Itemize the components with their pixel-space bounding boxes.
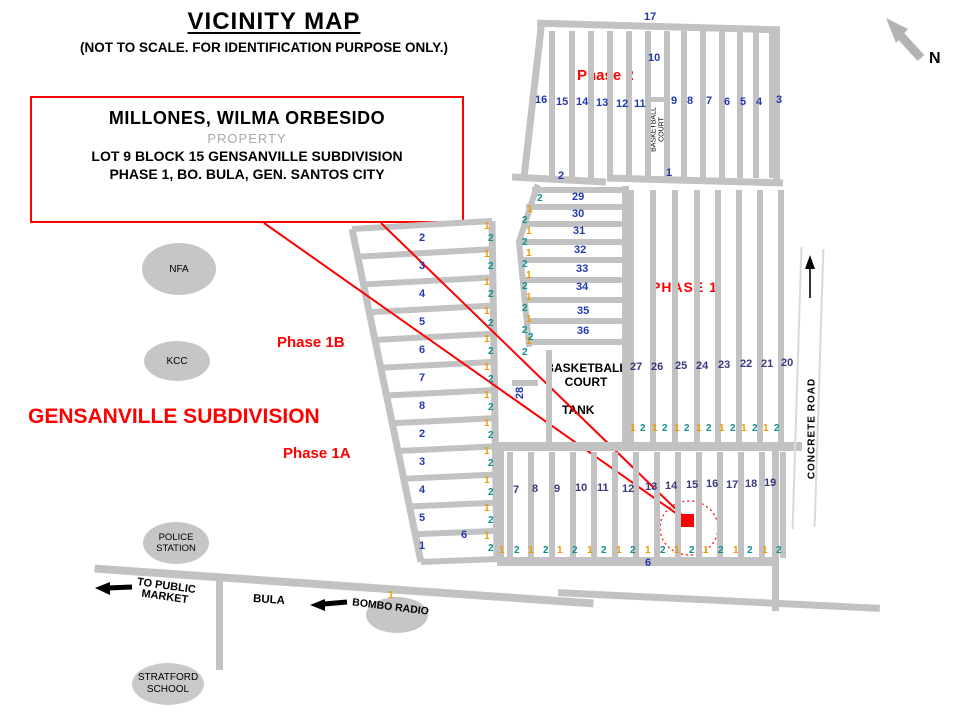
lot-number: 31 bbox=[573, 225, 585, 237]
lot-number: 26 bbox=[651, 361, 663, 373]
lot-number: 2 bbox=[419, 232, 425, 244]
road-segment bbox=[612, 452, 618, 558]
lot-number: 2 bbox=[630, 545, 636, 557]
lot-number: 6 bbox=[461, 529, 467, 541]
lot-number: 2 bbox=[640, 423, 646, 435]
kcc-label: KCC bbox=[166, 356, 187, 367]
lot-number: 2 bbox=[706, 423, 712, 435]
phase-1b-label: Phase 1B bbox=[277, 334, 345, 351]
subject-lot-marker bbox=[681, 514, 694, 527]
lot-number: 2 bbox=[662, 423, 668, 435]
road-segment bbox=[717, 452, 723, 558]
north-arrow-shaft bbox=[899, 34, 921, 58]
subdivision-title: GENSANVILLE SUBDIVISION bbox=[28, 405, 320, 429]
road-segment bbox=[528, 318, 622, 324]
road-segment bbox=[392, 418, 495, 423]
lot-number: 2 bbox=[528, 332, 534, 344]
lot-number: 8 bbox=[687, 95, 693, 107]
lot-number: 2 bbox=[488, 374, 494, 386]
lot-number: 25 bbox=[675, 360, 687, 372]
road-segment bbox=[546, 350, 552, 446]
road-segment bbox=[512, 380, 538, 386]
lot-number: 2 bbox=[747, 545, 753, 557]
lot-number: 1 bbox=[719, 423, 725, 435]
lot-number: 1 bbox=[484, 418, 490, 430]
lot-number: 12 bbox=[616, 98, 628, 110]
lot-number: 2 bbox=[537, 193, 543, 205]
road-segment bbox=[387, 390, 495, 396]
nfa-label: NFA bbox=[169, 264, 188, 275]
lot-number: 16 bbox=[706, 478, 718, 490]
lot-number: 2 bbox=[488, 430, 494, 442]
road-segment bbox=[778, 190, 784, 444]
lot-number: 1 bbox=[645, 545, 651, 557]
lot-number: 4 bbox=[419, 484, 425, 496]
road-segment bbox=[591, 452, 597, 558]
lot-number: 1 bbox=[419, 540, 425, 552]
road-segment bbox=[738, 452, 744, 558]
road-segment bbox=[404, 475, 496, 479]
lot-number: 1 bbox=[557, 545, 563, 557]
lot-number: 2 bbox=[601, 545, 607, 557]
police-station-label-line2: STATION bbox=[156, 543, 196, 554]
road-segment bbox=[527, 297, 622, 303]
lot-number: 12 bbox=[622, 483, 634, 495]
road-segment bbox=[715, 190, 721, 444]
road-segment bbox=[696, 452, 702, 558]
road-segment bbox=[772, 449, 779, 611]
lot-number: 5 bbox=[740, 96, 746, 108]
road-segment bbox=[628, 190, 634, 444]
lot-number: 23 bbox=[718, 359, 730, 371]
police-station-landmark: POLICE STATION bbox=[143, 522, 209, 564]
road-segment bbox=[369, 306, 493, 313]
lot-number: 1 bbox=[484, 503, 490, 515]
lot-number: 1 bbox=[696, 423, 702, 435]
lot-number: 1 bbox=[484, 221, 490, 233]
lot-number: 1 bbox=[484, 390, 490, 402]
road-segment bbox=[381, 362, 494, 368]
lot-number: 1 bbox=[484, 531, 490, 543]
lot-number: 1 bbox=[674, 423, 680, 435]
lot-number: 21 bbox=[761, 358, 773, 370]
lot-number: 24 bbox=[696, 360, 708, 372]
lot-number: 36 bbox=[577, 325, 589, 337]
road-segment bbox=[792, 247, 803, 529]
lot-number: 1 bbox=[484, 334, 490, 346]
lot-number: 2 bbox=[718, 545, 724, 557]
lot-number: 1 bbox=[484, 306, 490, 318]
road-segment bbox=[364, 277, 493, 284]
lot-number: 22 bbox=[740, 358, 752, 370]
road-segment bbox=[654, 452, 660, 558]
road-segment bbox=[650, 190, 656, 444]
police-station-label-line1: POLICE bbox=[159, 532, 194, 543]
lot-number: 9 bbox=[554, 483, 560, 495]
lot-number: 2 bbox=[774, 423, 780, 435]
lot-number: 10 bbox=[575, 482, 587, 494]
road-segment bbox=[529, 339, 622, 345]
lot-number: 2 bbox=[488, 515, 494, 527]
lot-number: 2 bbox=[543, 545, 549, 557]
property-owner: MILLONES, WILMA ORBESIDO bbox=[32, 108, 462, 129]
lot-number: 17 bbox=[644, 11, 656, 23]
lot-number: 6 bbox=[724, 96, 730, 108]
lot-number: 6 bbox=[419, 344, 425, 356]
lot-number: 2 bbox=[730, 423, 736, 435]
road-segment bbox=[398, 446, 495, 451]
road-segment bbox=[549, 31, 555, 178]
lot-number: 5 bbox=[419, 512, 425, 524]
lot-number: 1 bbox=[499, 545, 505, 557]
lot-number: 1 bbox=[652, 423, 658, 435]
lot-number: 2 bbox=[419, 428, 425, 440]
road-segment bbox=[633, 452, 639, 558]
lot-number: 11 bbox=[597, 482, 609, 494]
lot-number: 1 bbox=[674, 545, 680, 557]
lot-number: 2 bbox=[488, 318, 494, 330]
lot-number: 2 bbox=[488, 458, 494, 470]
road-segment bbox=[769, 31, 775, 178]
lot-number: 30 bbox=[572, 208, 584, 220]
road-segment bbox=[421, 559, 497, 562]
lot-number: 2 bbox=[558, 170, 564, 182]
north-label: N bbox=[929, 50, 941, 68]
road-segment bbox=[675, 452, 681, 558]
road-segment bbox=[759, 452, 765, 558]
lot-number: 2 bbox=[488, 487, 494, 499]
property-type: PROPERTY bbox=[32, 131, 462, 146]
lot-number: 16 bbox=[535, 94, 547, 106]
to-public-market-arrow-icon bbox=[95, 582, 110, 595]
lot-number: 15 bbox=[686, 479, 698, 491]
road-segment bbox=[736, 190, 742, 444]
lot-number: 1 bbox=[587, 545, 593, 557]
road-segment bbox=[569, 31, 575, 178]
lot-number: 1 bbox=[484, 475, 490, 487]
lot-number: 29 bbox=[572, 191, 584, 203]
road-segment bbox=[780, 452, 786, 558]
lot-number: 2 bbox=[684, 423, 690, 435]
road-segment bbox=[570, 452, 576, 558]
lot-number: 17 bbox=[726, 479, 738, 491]
road-segment bbox=[549, 452, 555, 558]
road-segment bbox=[522, 221, 622, 227]
lot-number: 27 bbox=[630, 361, 642, 373]
lot-number: 2 bbox=[514, 545, 520, 557]
nfa-landmark: NFA bbox=[142, 243, 216, 295]
lot-number: 11 bbox=[634, 98, 646, 110]
lot-number: 1 bbox=[484, 362, 490, 374]
lot-number: 13 bbox=[645, 481, 657, 493]
lot-number: 1 bbox=[666, 167, 672, 179]
lot-number: 1 bbox=[733, 545, 739, 557]
lot-number: 2 bbox=[488, 543, 494, 555]
lot-number: 2 bbox=[488, 402, 494, 414]
road-segment bbox=[672, 190, 678, 444]
lot-number: 1 bbox=[762, 545, 768, 557]
lot-number: 20 bbox=[781, 357, 793, 369]
property-callout-box: MILLONES, WILMA ORBESIDO PROPERTY LOT 9 … bbox=[30, 96, 464, 223]
bombo-radio-arrow-shaft bbox=[324, 602, 347, 604]
lot-number: 15 bbox=[556, 96, 568, 108]
lot-number: 35 bbox=[577, 305, 589, 317]
lot-number: 9 bbox=[671, 95, 677, 107]
bombo-radio-arrow-icon bbox=[310, 599, 325, 611]
lot-number: 6 bbox=[645, 557, 651, 569]
lot-number: 2 bbox=[488, 261, 494, 273]
to-public-market-label: TO PUBLIC MARKET bbox=[135, 577, 197, 607]
stratford-school-label-line2: SCHOOL bbox=[147, 684, 189, 696]
lot-number: 7 bbox=[706, 95, 712, 107]
lot-number: 4 bbox=[419, 288, 425, 300]
lot-number: 33 bbox=[576, 263, 588, 275]
lot-number: 2 bbox=[572, 545, 578, 557]
lot-number: 2 bbox=[488, 346, 494, 358]
page-title: VICINITY MAP bbox=[188, 8, 361, 35]
bula-road-label: BULA bbox=[253, 593, 286, 607]
lot-number: 3 bbox=[419, 260, 425, 272]
road-segment bbox=[497, 557, 779, 566]
property-address-line2: PHASE 1, BO. BULA, GEN. SANTOS CITY bbox=[32, 166, 462, 182]
road-segment bbox=[528, 452, 534, 558]
road-segment bbox=[216, 577, 223, 670]
lot-number: 2 bbox=[488, 289, 494, 301]
lot-number: 4 bbox=[756, 96, 762, 108]
kcc-landmark: KCC bbox=[144, 341, 210, 381]
stratford-school-label-line1: STRATFORD bbox=[138, 672, 198, 684]
lot-number: 19 bbox=[764, 477, 776, 489]
lot-number: 1 bbox=[484, 249, 490, 261]
lot-number: 3 bbox=[419, 456, 425, 468]
lot-number: 13 bbox=[596, 97, 608, 109]
phase-1a-label: Phase 1A bbox=[283, 445, 351, 462]
lot-number: 1 bbox=[484, 446, 490, 458]
lot-number: 2 bbox=[752, 423, 758, 435]
tank-label: TANK bbox=[562, 403, 594, 417]
lot-number: 1 bbox=[388, 590, 394, 602]
lot-number: 2 bbox=[689, 545, 695, 557]
lot-number: 2 bbox=[488, 233, 494, 245]
road-segment bbox=[664, 31, 670, 178]
lot-number: 18 bbox=[745, 478, 757, 490]
page-subtitle: (NOT TO SCALE. FOR IDENTIFICATION PURPOS… bbox=[36, 40, 492, 55]
lot-number: 10 bbox=[648, 52, 660, 64]
phase2-basketball-line1: BASKETBALL bbox=[651, 102, 659, 158]
lot-number: 32 bbox=[574, 244, 586, 256]
lot-number: 1 bbox=[630, 423, 636, 435]
road-segment bbox=[523, 257, 622, 263]
north-arrow-icon bbox=[886, 18, 908, 43]
phase1-ladder-block-roads bbox=[352, 221, 497, 562]
lot-number: 2 bbox=[522, 347, 528, 359]
lot-number: 8 bbox=[419, 400, 425, 412]
to-public-market-arrow-shaft bbox=[108, 587, 132, 588]
phase-1-label: PHASE 1 bbox=[651, 279, 718, 295]
title-block: VICINITY MAP bbox=[124, 8, 424, 36]
road-segment bbox=[507, 452, 513, 558]
lot-number: 1 bbox=[616, 545, 622, 557]
concrete-road-arrow-icon bbox=[805, 255, 815, 269]
lot-number: 34 bbox=[576, 281, 588, 293]
road-segment bbox=[558, 589, 880, 612]
property-address-line1: LOT 9 BLOCK 15 GENSANVILLE SUBDIVISION bbox=[32, 148, 462, 164]
lot-number-28-rotated: 28 bbox=[514, 387, 526, 399]
lot-number: 1 bbox=[763, 423, 769, 435]
lot-number: 1 bbox=[703, 545, 709, 557]
lot-number: 14 bbox=[576, 96, 588, 108]
vicinity-map-page: { "title": { "heading": "VICINITY MAP", … bbox=[0, 0, 960, 720]
lot-number: 7 bbox=[419, 372, 425, 384]
road-segment bbox=[757, 190, 763, 444]
road-segment bbox=[375, 334, 494, 340]
lot-number: 1 bbox=[528, 545, 534, 557]
lot-number: 1 bbox=[741, 423, 747, 435]
road-segment bbox=[588, 31, 594, 178]
road-segment bbox=[694, 190, 700, 444]
road-segment bbox=[525, 277, 622, 283]
lot-number: 8 bbox=[532, 483, 538, 495]
road-segment bbox=[352, 229, 421, 562]
lot-number: 1 bbox=[484, 277, 490, 289]
road-segment bbox=[358, 249, 493, 257]
lot-number: 3 bbox=[776, 94, 782, 106]
lot-number: 2 bbox=[660, 545, 666, 557]
stratford-school-landmark: STRATFORD SCHOOL bbox=[132, 663, 204, 705]
lot-number: 2 bbox=[776, 545, 782, 557]
road-segment bbox=[521, 239, 622, 245]
lot-number: 5 bbox=[419, 316, 425, 328]
lot-number: 7 bbox=[513, 484, 519, 496]
lot-number: 14 bbox=[665, 480, 677, 492]
vicinity-map-canvas: VICINITY MAP (NOT TO SCALE. FOR IDENTIFI… bbox=[0, 0, 960, 720]
